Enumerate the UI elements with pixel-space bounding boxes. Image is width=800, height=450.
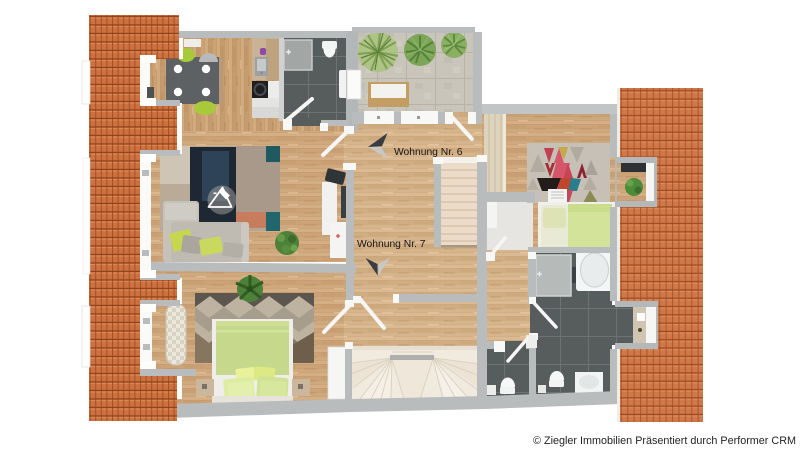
svg-text:© Ziegler Immobilien Präsentie: © Ziegler Immobilien Präsentiert durch P… <box>533 435 796 447</box>
svg-text:Wohnung Nr. 7: Wohnung Nr. 7 <box>357 239 426 250</box>
svg-text:Wohnung Nr. 6: Wohnung Nr. 6 <box>394 147 463 158</box>
